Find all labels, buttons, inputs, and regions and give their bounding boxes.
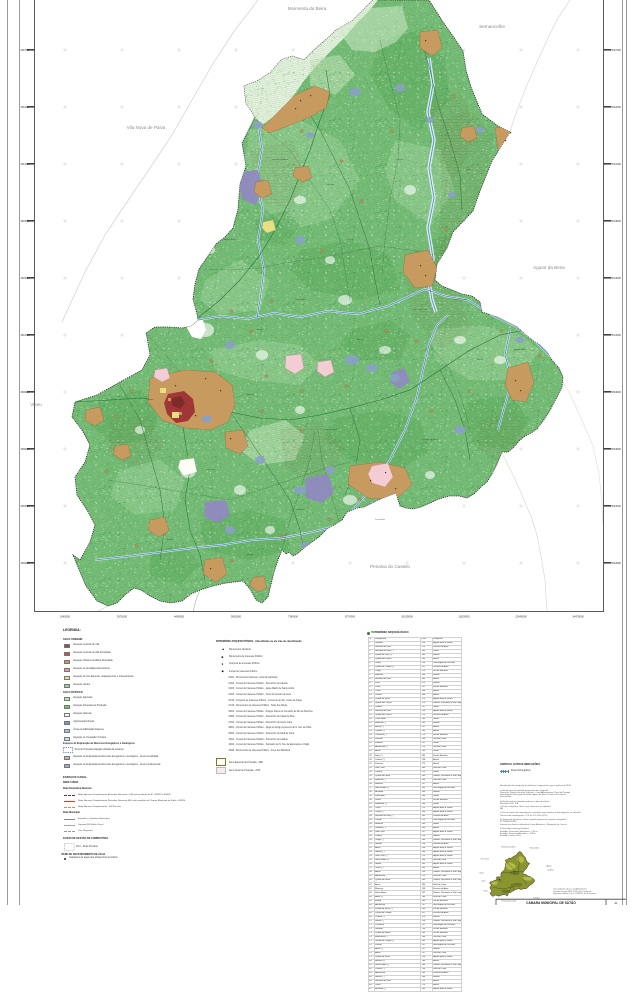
svg-text:Aguas Boas: Aguas Boas <box>224 238 237 241</box>
svg-text:Avelal: Avelal <box>167 538 173 541</box>
svg-text:Aguas Boas: Aguas Boas <box>514 348 527 351</box>
svg-text:Contige: Contige <box>246 393 254 396</box>
svg-text:Vila Boa: Vila Boa <box>326 184 335 186</box>
svg-text:Romas: Romas <box>297 509 305 511</box>
svg-text:4515000: 4515000 <box>612 278 622 280</box>
svg-text:Moimenta da Beira: Moimenta da Beira <box>288 6 327 11</box>
svg-text:Romas: Romas <box>467 169 475 171</box>
svg-text:Silva de Cima: Silva de Cima <box>453 299 467 301</box>
svg-text:7345000: 7345000 <box>288 615 299 619</box>
svg-text:13045000: 13045000 <box>515 615 527 619</box>
svg-text:Sernancelhe: Sernancelhe <box>530 847 540 850</box>
svg-text:11620000: 11620000 <box>458 615 470 619</box>
svg-text:4512000: 4512000 <box>612 335 622 337</box>
svg-text:freguesias conforme a Lei n.º: freguesias conforme a Lei n.º 11-A/2013,… <box>553 892 597 895</box>
svg-text:Viseu: Viseu <box>482 881 486 883</box>
svg-text:Penalva do Castelo: Penalva do Castelo <box>502 900 517 903</box>
svg-text:4527000: 4527000 <box>21 50 31 52</box>
svg-text:4495000: 4495000 <box>174 615 185 619</box>
svg-text:4527000: 4527000 <box>612 50 622 52</box>
svg-text:Lamas: Lamas <box>397 159 404 161</box>
svg-text:4503000: 4503000 <box>612 506 622 508</box>
svg-text:4524000: 4524000 <box>612 107 622 109</box>
svg-text:4500000: 4500000 <box>612 563 622 565</box>
svg-text:Moimenta da Beira: Moimenta da Beira <box>502 846 516 849</box>
svg-text:4524000: 4524000 <box>21 107 31 109</box>
svg-text:Vila Nova de Paiva: Vila Nova de Paiva <box>127 125 166 130</box>
svg-text:4521000: 4521000 <box>612 164 622 166</box>
svg-text:Viseu: Viseu <box>30 402 42 407</box>
svg-text:Penalva do Castelo: Penalva do Castelo <box>370 564 410 569</box>
svg-text:A1: A1 <box>614 901 618 905</box>
svg-text:Vila Boa: Vila Boa <box>206 469 215 471</box>
svg-text:4506000: 4506000 <box>21 449 31 451</box>
svg-text:CÂMARA MUNICIPAL DE SÁTÃO: CÂMARA MUNICIPAL DE SÁTÃO <box>526 900 576 905</box>
svg-text:Viseu: Viseu <box>484 891 488 893</box>
svg-text:Forles: Forles <box>347 238 354 241</box>
svg-text:14470000: 14470000 <box>572 615 584 619</box>
svg-text:4512000: 4512000 <box>21 335 31 337</box>
svg-text:8770000: 8770000 <box>345 615 356 619</box>
svg-text:3070000: 3070000 <box>117 615 128 619</box>
svg-text:4518000: 4518000 <box>21 221 31 223</box>
svg-text:Casal de Mem: Casal de Mem <box>323 429 337 431</box>
svg-text:Viseu: Viseu <box>480 873 484 875</box>
svg-text:V. N. Paiva: V. N. Paiva <box>481 859 489 861</box>
svg-text:Mioma: Mioma <box>247 554 254 556</box>
svg-text:Silva de Cima: Silva de Cima <box>413 309 427 311</box>
svg-text:Avelal: Avelal <box>257 328 263 331</box>
svg-text:10195000: 10195000 <box>401 615 413 619</box>
svg-text:Decermilo: Decermilo <box>295 298 306 301</box>
svg-text:4515000: 4515000 <box>21 278 31 280</box>
svg-text:4509000: 4509000 <box>612 392 622 394</box>
svg-text:4500000: 4500000 <box>21 563 31 565</box>
svg-text:da Beira: da Beira <box>548 869 554 872</box>
svg-text:4518000: 4518000 <box>612 221 622 223</box>
svg-text:Ferreira de Aves: Ferreira de Aves <box>422 438 439 441</box>
svg-text:Ferreira de Aves: Ferreira de Aves <box>272 158 289 161</box>
svg-text:Sernancelhe: Sernancelhe <box>479 24 505 29</box>
svg-text:Aguiar da Beira: Aguiar da Beira <box>533 265 565 270</box>
svg-text:4506000: 4506000 <box>612 449 622 451</box>
svg-text:4521000: 4521000 <box>21 164 31 166</box>
svg-text:Forles: Forles <box>477 358 484 361</box>
svg-text:4503000: 4503000 <box>21 506 31 508</box>
svg-text:4509000: 4509000 <box>21 392 31 394</box>
svg-text:Aguiar: Aguiar <box>547 865 552 868</box>
svg-text:1645000: 1645000 <box>60 615 71 619</box>
svg-text:5920000: 5920000 <box>231 615 242 619</box>
svg-text:Mioma: Mioma <box>357 339 364 341</box>
svg-text:Lamas: Lamas <box>147 399 154 401</box>
svg-text:Decermilo: Decermilo <box>375 518 386 521</box>
